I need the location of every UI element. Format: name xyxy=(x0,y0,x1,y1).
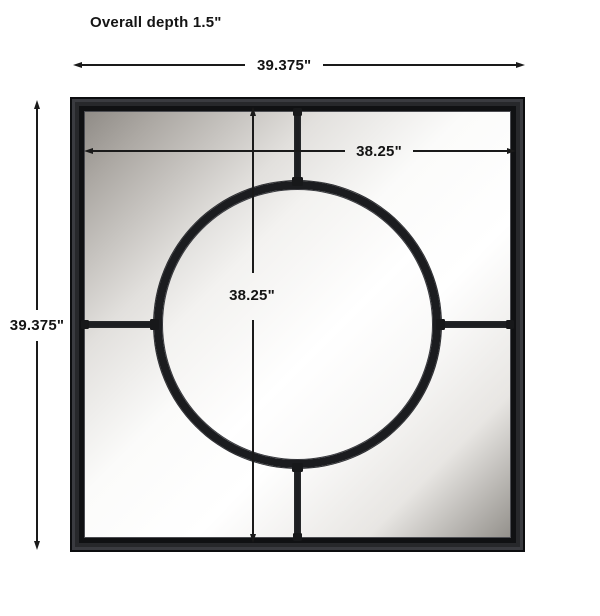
dimension-line xyxy=(36,341,37,542)
overall-width-label: 39.375" xyxy=(245,57,323,74)
arrow-right-icon xyxy=(516,62,525,68)
dimension-line xyxy=(252,115,253,273)
joint-frame-right xyxy=(506,320,514,329)
overall-depth-label: Overall depth 1.5" xyxy=(90,14,222,31)
dimension-line xyxy=(252,320,253,535)
arrow-up-icon xyxy=(34,100,40,109)
joint-frame-bottom xyxy=(293,533,302,541)
joint-frame-top xyxy=(293,108,302,116)
inner-height-label: 38.25" xyxy=(212,287,292,304)
joint-frame-left xyxy=(81,320,89,329)
dimension-line xyxy=(413,150,508,151)
joint-circle-top xyxy=(292,177,303,186)
dimension-overall-width: 39.375" xyxy=(73,58,525,72)
dimension-overall-height: 39.375" xyxy=(9,100,65,550)
dimension-line xyxy=(323,64,516,65)
divider-top xyxy=(294,111,301,183)
center-circle-mirror xyxy=(154,181,441,468)
arrow-down-icon xyxy=(250,534,256,543)
arrow-down-icon xyxy=(34,541,40,550)
arrow-right-icon xyxy=(507,148,516,154)
dimension-line xyxy=(36,109,37,310)
dimension-line xyxy=(92,150,345,151)
dimension-line xyxy=(82,64,245,65)
product-dimension-diagram: Overall depth 1.5" 39.375" 39.375" xyxy=(0,0,600,616)
joint-circle-right xyxy=(436,319,445,330)
mirror-frame xyxy=(70,97,525,552)
joint-circle-bottom xyxy=(292,463,303,472)
divider-bottom xyxy=(294,466,301,538)
overall-height-label: 39.375" xyxy=(10,310,64,341)
inner-width-label: 38.25" xyxy=(345,143,413,160)
joint-circle-left xyxy=(150,319,159,330)
divider-right xyxy=(439,321,511,328)
arrow-left-icon xyxy=(73,62,82,68)
divider-left xyxy=(84,321,156,328)
